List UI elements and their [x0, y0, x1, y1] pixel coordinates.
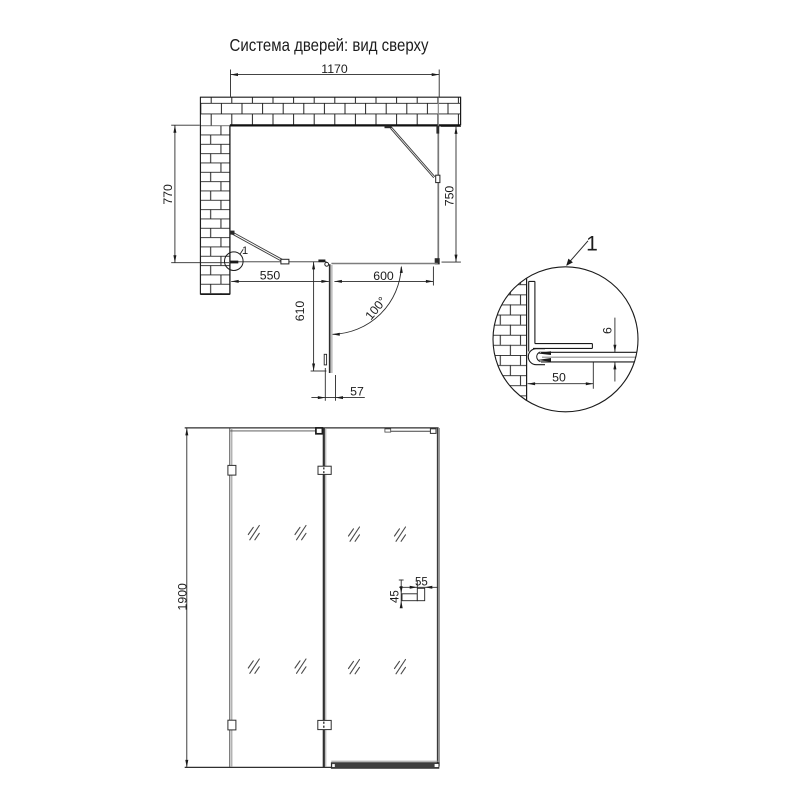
svg-text:55: 55 [415, 577, 428, 589]
svg-text:6: 6 [601, 327, 615, 334]
svg-text:57: 57 [350, 384, 364, 398]
svg-text:600: 600 [373, 269, 394, 283]
svg-text:50: 50 [552, 370, 566, 384]
svg-text:610: 610 [293, 301, 307, 322]
svg-text:770: 770 [161, 184, 175, 205]
svg-text:1900: 1900 [175, 583, 189, 611]
svg-text:1: 1 [586, 232, 598, 255]
svg-text:750: 750 [443, 186, 457, 207]
svg-text:1: 1 [242, 245, 248, 257]
svg-text:45: 45 [390, 590, 402, 603]
svg-text:1170: 1170 [321, 62, 348, 76]
svg-text:Система дверей: вид сверху: Система дверей: вид сверху [230, 35, 429, 55]
svg-text:550: 550 [260, 269, 281, 283]
